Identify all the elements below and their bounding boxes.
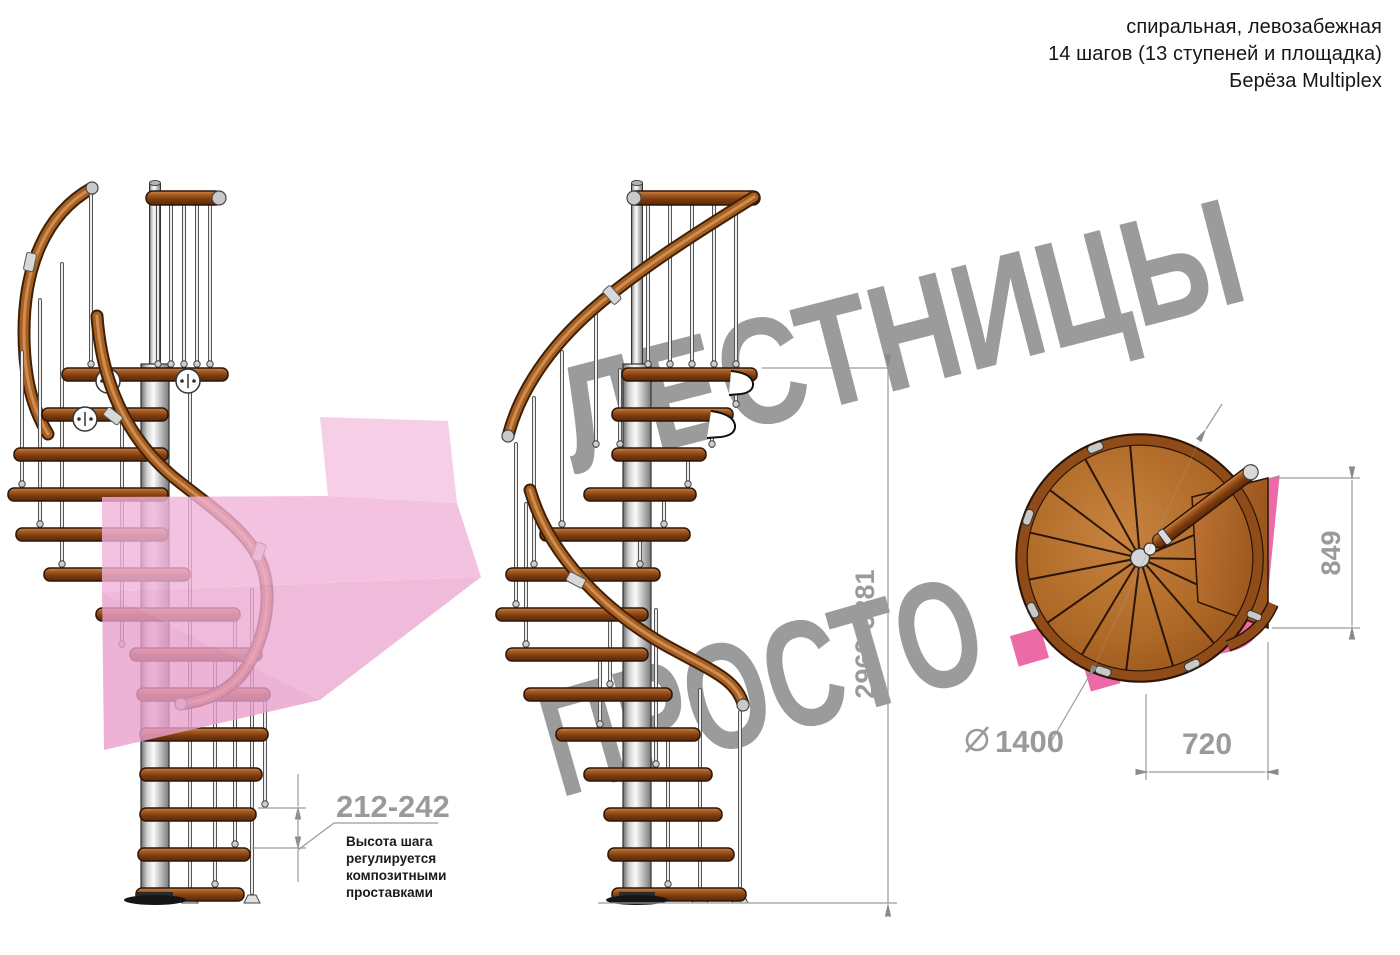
spec-steps: 14 шагов (13 ступеней и площадка) (1048, 41, 1382, 68)
baluster-joint (665, 881, 671, 887)
disc-bolt (192, 379, 196, 383)
baluster-joint (597, 721, 603, 727)
handrail-cap (86, 182, 98, 194)
baluster-joint (168, 361, 174, 367)
baluster-joint (523, 641, 529, 647)
note-line-4: проставками (346, 885, 433, 900)
plan-handrail-ball-joint (1144, 543, 1156, 555)
step-bar (584, 768, 712, 781)
note-line-3: композитными (346, 868, 446, 883)
disc-bolt (89, 417, 93, 421)
dimension-step-height: 212-242 Высота шага регулируется компози… (252, 774, 450, 900)
step-bar (612, 448, 706, 461)
baluster-joint (37, 521, 43, 527)
disc-bolt (77, 417, 81, 421)
baluster-joint (59, 561, 65, 567)
baluster-joint (733, 401, 739, 407)
baluster-joint (711, 361, 717, 367)
baluster-joint (19, 481, 25, 487)
step-bar (140, 768, 262, 781)
pole-cap (150, 181, 161, 186)
step-bar (62, 368, 228, 381)
baluster-joint (232, 841, 238, 847)
baluster-foot (244, 895, 260, 903)
baluster-joint (155, 361, 161, 367)
spec-material: Берёза Multiplex (1048, 68, 1382, 95)
baluster-joint (559, 521, 565, 527)
disc-bolt (180, 379, 184, 383)
diameter-icon (966, 727, 988, 752)
step-bar (540, 528, 690, 541)
overall-height-label: 2969-3381 (850, 569, 880, 698)
baluster-joint (617, 441, 623, 447)
top-rail-cap (627, 191, 641, 205)
step-bar (556, 728, 700, 741)
baluster-joint (194, 361, 200, 367)
baluster-joint (212, 881, 218, 887)
balustrade-top-rail (146, 191, 222, 205)
step-bar (524, 688, 672, 701)
baluster-joint (733, 361, 739, 367)
baluster-joint (637, 561, 643, 567)
plan-depth-label: 849 (1316, 530, 1346, 575)
baluster-joint (262, 801, 268, 807)
step-bar (138, 848, 250, 861)
baluster-joint (207, 361, 213, 367)
baluster-joint (593, 441, 599, 447)
step-bar (604, 808, 722, 821)
spec-sheet: ЛЕСТНИЦЫ ПРОСТО .ру (0, 0, 1400, 955)
pole-cap (632, 181, 643, 186)
note-line-1: Высота шага (346, 834, 433, 849)
baluster-joint (181, 361, 187, 367)
spec-type: спиральная, левозабежная (1048, 14, 1382, 41)
baluster-joint (607, 681, 613, 687)
diameter-label: 1400 (995, 724, 1064, 759)
baluster-joint (667, 361, 673, 367)
baluster-joint (645, 361, 651, 367)
base-plate (124, 895, 186, 905)
step-height-label: 212-242 (336, 789, 450, 824)
handrail-cap (502, 430, 514, 442)
note-line-2: регулируется (346, 851, 436, 866)
elevation-view-side (496, 181, 760, 906)
baluster-joint (653, 761, 659, 767)
baluster-joint (513, 601, 519, 607)
step-height-note: Высота шага регулируется композитными пр… (346, 834, 446, 900)
baluster-joint (661, 521, 667, 527)
top-rail-cap (212, 191, 226, 205)
baluster-joint (685, 481, 691, 487)
drawing-scene: ЛЕСТНИЦЫ ПРОСТО .ру (0, 0, 1400, 955)
step-bar (140, 808, 256, 821)
step-bar (608, 848, 734, 861)
baluster-joint (88, 361, 94, 367)
step-bar (506, 648, 648, 661)
baluster-joint (709, 441, 715, 447)
plan-width-label: 720 (1182, 728, 1232, 761)
step-bar (584, 488, 696, 501)
baluster-joint (531, 561, 537, 567)
baluster-joint (689, 361, 695, 367)
title-block: спиральная, левозабежная 14 шагов (13 ст… (1048, 14, 1382, 95)
handrail-cap (737, 699, 749, 711)
